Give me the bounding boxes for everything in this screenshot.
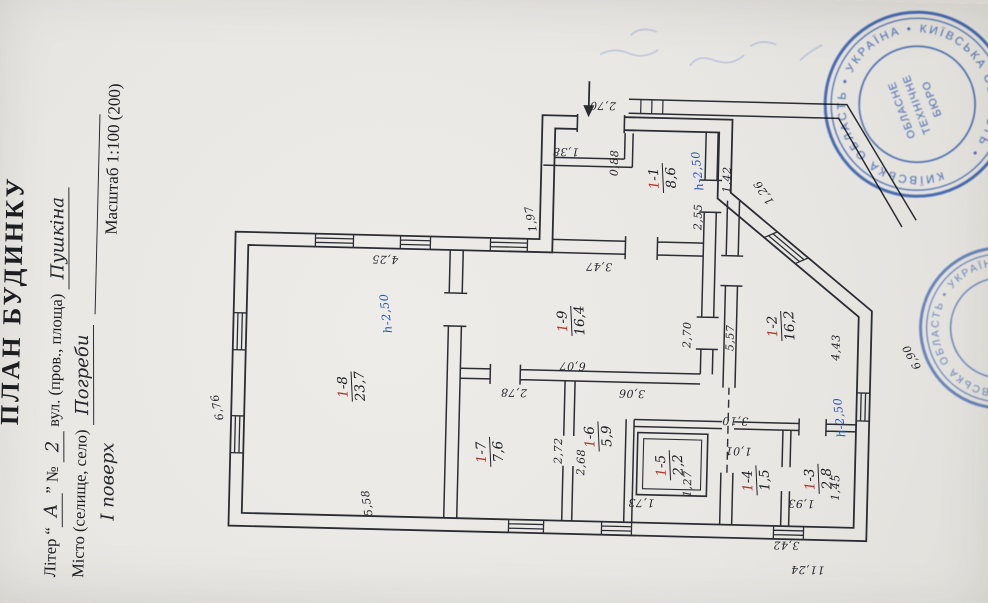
dimension-3,42: 3,42 [773,538,800,552]
dimension-2,78: 2,78 [500,386,527,400]
dimension-1,45: 1,45 [829,474,843,501]
dimension-6,07: 6,07 [559,359,586,373]
dashed-opening-line [727,388,729,473]
scanned-document: ПЛАН БУДИНКУ Літер “А” № 2 вул. (пров., … [0,0,988,603]
dimension-3,47: 3,47 [585,260,612,274]
dimension-1,27: 1,27 [681,470,695,497]
dimension-1,38: 1,38 [552,145,579,159]
dimension-2,70: 2,70 [589,99,616,113]
photo-frame: ПЛАН БУДИНКУ Літер “А” № 2 вул. (пров., … [0,0,988,603]
room-label-1-4: 1-41,5 [740,465,773,496]
entrance-opening [577,114,624,133]
dimension-1,01: 1,01 [725,444,752,458]
room-label-1-6: 1-65,9 [582,421,615,452]
dimension-5,57: 5,57 [723,324,737,351]
dimension-4,25: 4,25 [372,253,399,267]
ink-bleed-marks [600,28,823,69]
dimension-1,93: 1,93 [788,497,815,511]
dimension-1,42: 1,42 [720,166,734,193]
svg-text:КИЇВСЬКА ОБЛАСТЬ • УКРАЇНА •: КИЇВСЬКА ОБЛАСТЬ • УКРАЇНА • [918,253,988,411]
room-label-1-1: 1-18,6 [647,163,680,194]
dimension-2,55: 2,55 [691,204,705,231]
dimension-0,88: 0,88 [608,149,622,176]
dimension-4,43: 4,43 [829,334,843,361]
stamp2-ring-text: КИЇВСЬКА ОБЛАСТЬ • УКРАЇНА • [918,253,988,411]
dimension-3,06: 3,06 [618,387,645,401]
dimension-2,68: 2,68 [574,449,588,476]
dimension-3,10: 3,10 [722,414,749,428]
dimension-2,70: 2,70 [680,321,694,348]
room-label-1-7: 1-77,6 [474,436,507,467]
room-label-1-8: 1-823,7 [336,371,369,402]
dimension-1,73: 1,73 [628,496,655,510]
room-label-1-9: 1-916,4 [555,305,588,336]
dimension-11,24: 11,24 [790,563,824,577]
room-label-1-2: 1-216,2 [765,310,798,341]
dimension-2,72: 2,72 [552,437,566,464]
